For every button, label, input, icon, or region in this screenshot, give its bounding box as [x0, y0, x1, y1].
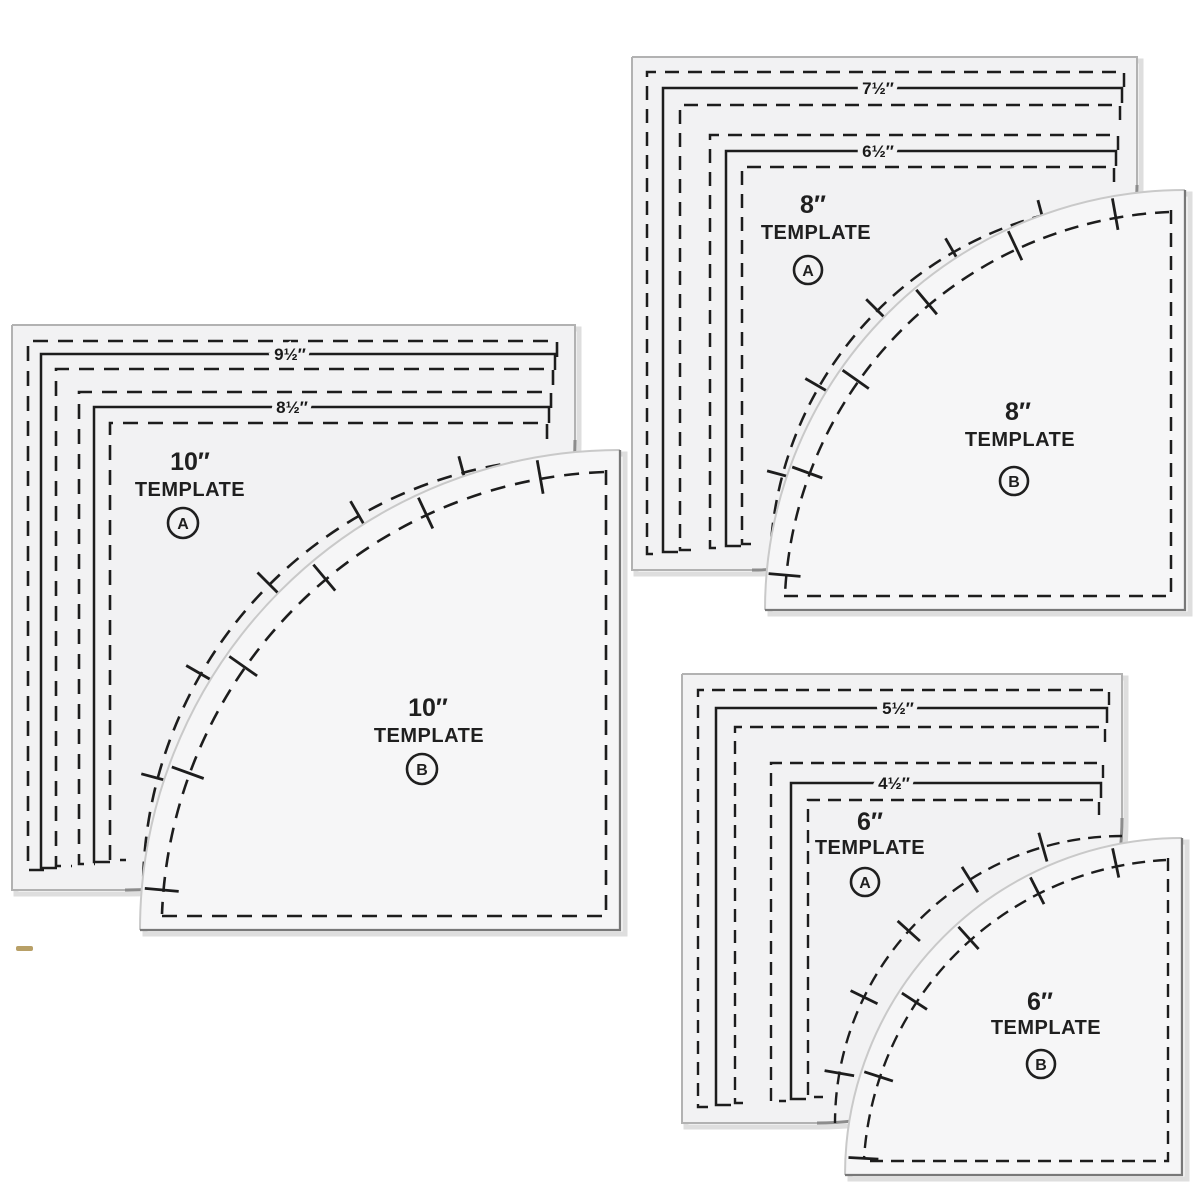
template-set-6in: 5½″ 4½″ 6″ TEMPLATE A 6″ TEMPLATE B — [682, 674, 1187, 1179]
ruler-label: 8½″ — [276, 398, 308, 417]
size-label: 10″ — [170, 448, 210, 476]
piece-letter: A — [802, 263, 814, 280]
piece-letter: B — [416, 762, 428, 779]
template-set-10in: 9½″ 8½″ 10″ TEMPLATE A 10″ TEMPLATE B — [12, 325, 625, 934]
size-label: 10″ — [408, 694, 448, 722]
template-word: TEMPLATE — [991, 1017, 1101, 1039]
size-label: 8″ — [800, 191, 826, 219]
size-label: 6″ — [1027, 988, 1053, 1016]
size-label: 8″ — [1005, 398, 1031, 426]
piece-letter: B — [1035, 1057, 1047, 1074]
photo-artifact-mark — [16, 946, 33, 951]
ruler-label: 7½″ — [862, 79, 894, 98]
ruler-label: 4½″ — [878, 774, 910, 793]
ruler-label: 6½″ — [862, 142, 894, 161]
piece-letter: A — [177, 516, 189, 533]
template-word: TEMPLATE — [761, 222, 871, 244]
ruler-label: 9½″ — [274, 345, 306, 364]
template-word: TEMPLATE — [135, 479, 245, 501]
template-word: TEMPLATE — [815, 837, 925, 859]
registration-tick — [849, 1158, 879, 1160]
template-set-8in: 7½″ 6½″ 8″ TEMPLATE A 8″ TEMPLATE B — [632, 57, 1190, 614]
piece-letter: A — [859, 875, 871, 892]
size-label: 6″ — [857, 808, 883, 836]
product-image: 9½″ 8½″ 10″ TEMPLATE A 10″ TEMPLATE B — [0, 0, 1200, 1200]
piece-letter: B — [1008, 474, 1020, 491]
ruler-label: 5½″ — [882, 699, 914, 718]
template-illustration: 9½″ 8½″ 10″ TEMPLATE A 10″ TEMPLATE B — [0, 0, 1200, 1200]
template-word: TEMPLATE — [374, 725, 484, 747]
template-word: TEMPLATE — [965, 429, 1075, 451]
